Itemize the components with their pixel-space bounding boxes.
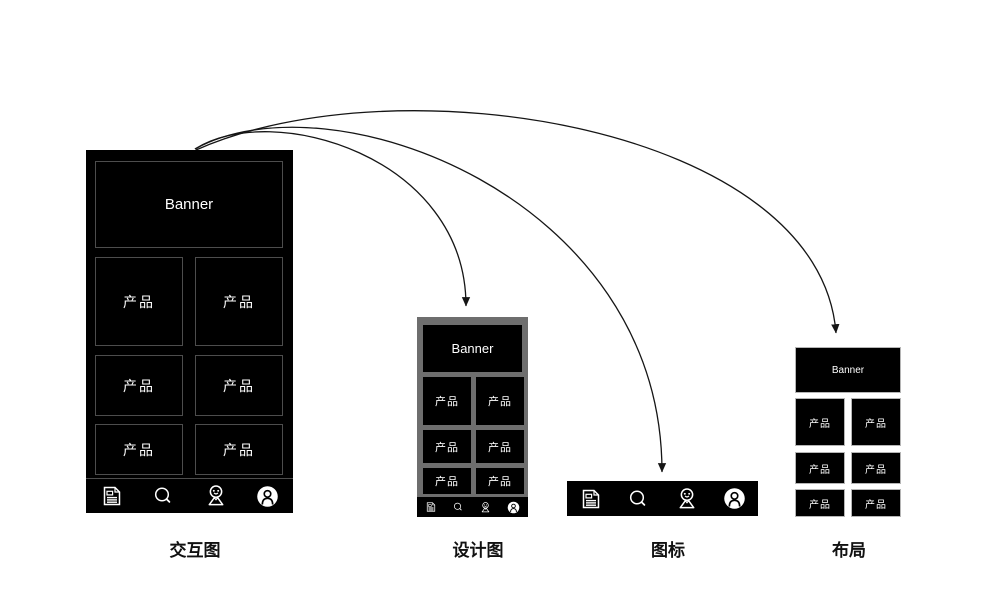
product-cell: 产品 xyxy=(195,424,283,475)
tab-bar xyxy=(86,478,293,513)
design-process-diagram: Banner 产品 产品 产品 产品 产品 产品 交互图 Banner 产品 产… xyxy=(0,0,1000,592)
icons-bar xyxy=(567,481,758,516)
design-mockup-caption: 设计图 xyxy=(418,536,538,561)
product-cell: 产品 xyxy=(423,430,471,463)
product-cell: 产品 xyxy=(851,489,901,517)
design-mockup: Banner 产品 产品 产品 产品 产品 产品 xyxy=(417,317,528,517)
product-cell: 产品 xyxy=(95,257,183,346)
interaction-mockup: Banner 产品 产品 产品 产品 产品 产品 xyxy=(86,150,293,513)
location-pin-icon xyxy=(674,486,700,512)
product-cell: 产品 xyxy=(423,377,471,425)
product-cell: 产品 xyxy=(195,257,283,346)
news-icon xyxy=(100,484,124,508)
interaction-mockup-caption: 交互图 xyxy=(135,536,255,561)
product-cell: 产品 xyxy=(795,489,845,517)
news-icon xyxy=(425,501,437,513)
product-cell: 产品 xyxy=(423,468,471,494)
layout-mockup-caption: 布局 xyxy=(789,536,909,561)
product-cell: 产品 xyxy=(95,424,183,475)
product-cell: 产品 xyxy=(95,355,183,416)
banner-block: Banner xyxy=(95,161,283,248)
icons-bar-caption: 图标 xyxy=(608,536,728,561)
search-icon xyxy=(151,484,175,508)
profile-icon xyxy=(507,501,520,514)
product-cell: 产品 xyxy=(795,452,845,484)
location-pin-icon xyxy=(479,501,492,514)
profile-icon xyxy=(256,485,279,508)
product-cell: 产品 xyxy=(476,468,524,494)
product-cell: 产品 xyxy=(195,355,283,416)
news-icon xyxy=(579,487,603,511)
product-cell: 产品 xyxy=(476,430,524,463)
tab-bar xyxy=(417,497,528,517)
search-icon xyxy=(452,501,464,513)
banner-block: Banner xyxy=(795,347,901,393)
banner-block: Banner xyxy=(423,325,522,372)
product-cell: 产品 xyxy=(476,377,524,425)
search-icon xyxy=(626,487,650,511)
product-cell: 产品 xyxy=(851,452,901,484)
product-cell: 产品 xyxy=(795,398,845,446)
layout-mockup: Banner 产品 产品 产品 产品 产品 产品 xyxy=(795,347,901,517)
product-cell: 产品 xyxy=(851,398,901,446)
location-pin-icon xyxy=(203,483,229,509)
profile-icon xyxy=(723,487,746,510)
